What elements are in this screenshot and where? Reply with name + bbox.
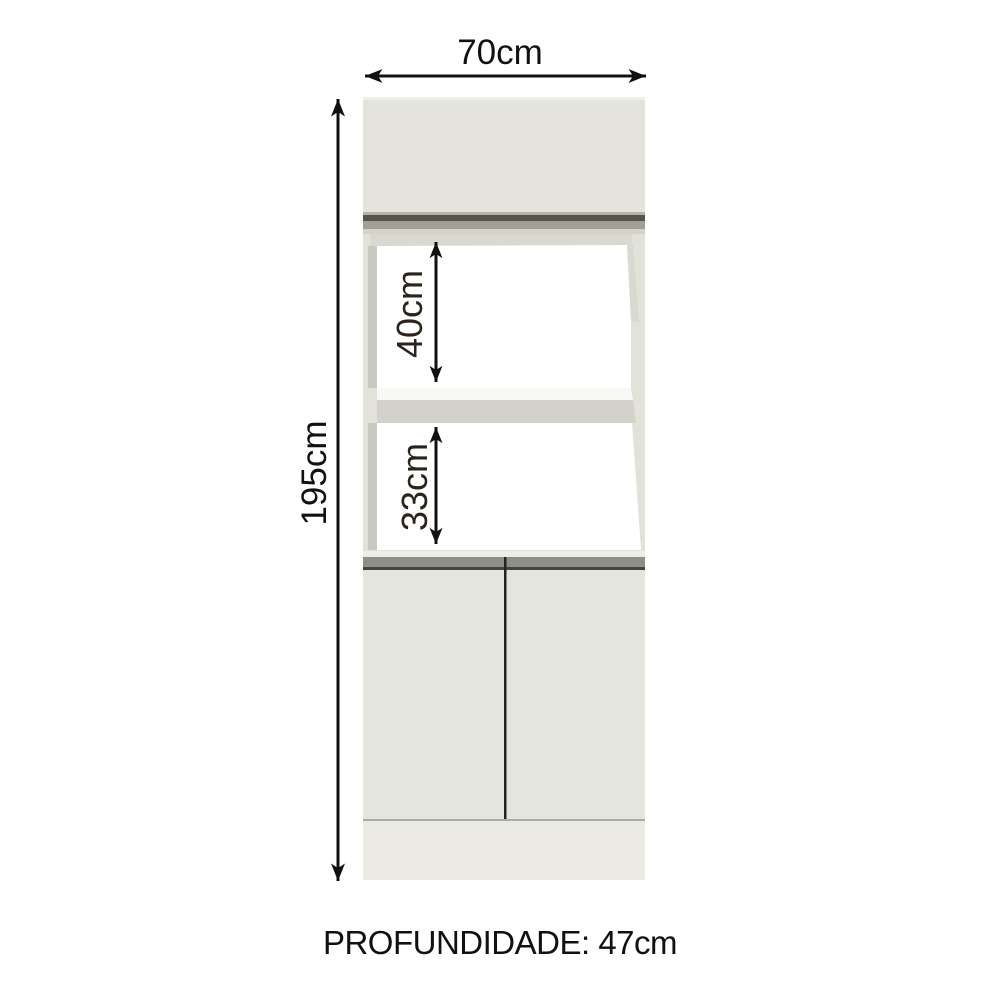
svg-text:PROFUNDIDADE: 47cm: PROFUNDIDADE: 47cm [323, 924, 677, 961]
svg-text:70cm: 70cm [457, 33, 543, 72]
svg-text:195cm: 195cm [295, 420, 334, 525]
svg-text:33cm: 33cm [394, 443, 435, 531]
svg-text:40cm: 40cm [389, 270, 430, 358]
